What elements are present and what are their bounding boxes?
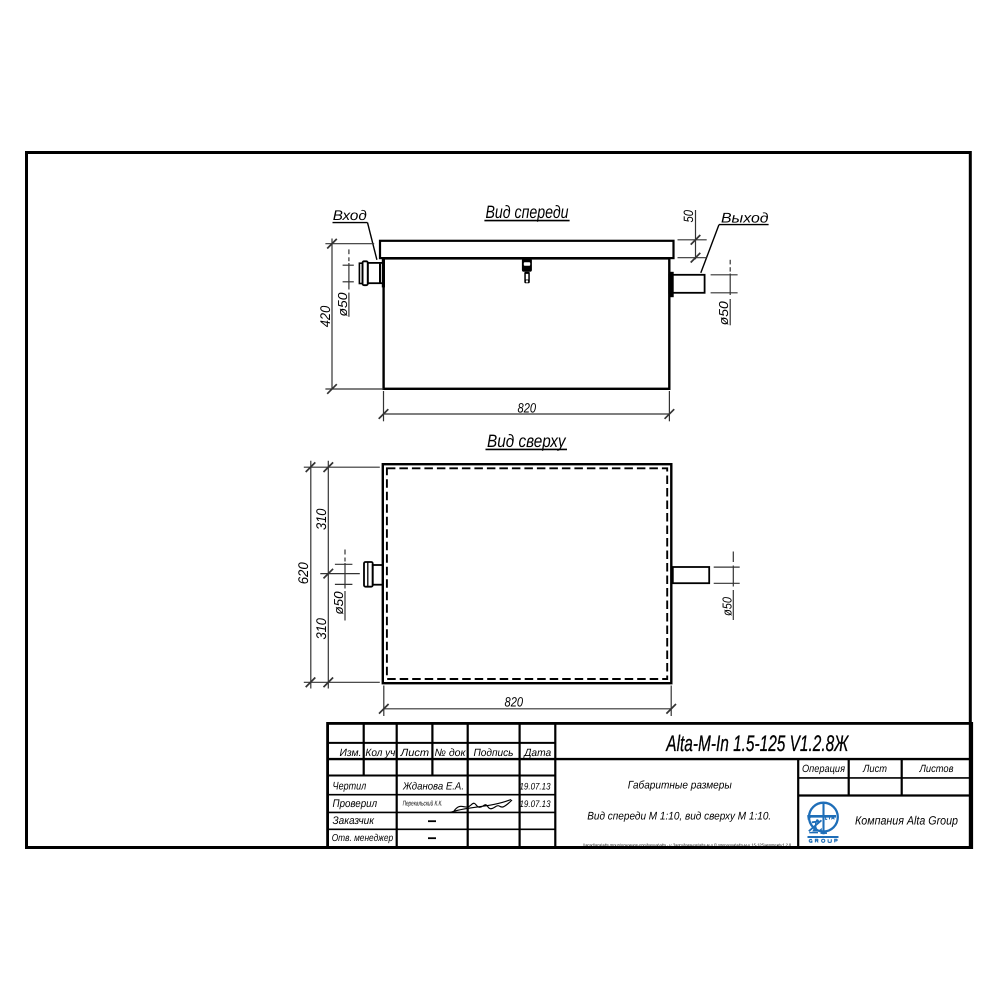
svg-text:Заказчик: Заказчик xyxy=(333,815,375,827)
svg-text:Дата: Дата xyxy=(523,747,551,759)
svg-text:420: 420 xyxy=(317,306,333,328)
svg-text:Вход: Вход xyxy=(333,207,367,223)
svg-text:Кол уч: Кол уч xyxy=(365,747,396,759)
svg-text:Чертил: Чертил xyxy=(333,781,367,793)
svg-text:820: 820 xyxy=(518,400,537,415)
svg-text:Выход: Выход xyxy=(721,209,769,225)
svg-text:Проверил: Проверил xyxy=(333,798,378,810)
svg-text:820: 820 xyxy=(505,695,524,710)
svg-text:Alta-M-In 1.5-125 V1.2.8Ж: Alta-M-In 1.5-125 V1.2.8Ж xyxy=(665,731,849,756)
svg-text:Лист: Лист xyxy=(400,747,430,759)
svg-text:№ док: № док xyxy=(435,747,467,759)
svg-text:\\acad\aca\alta group\основное: \\acad\aca\alta group\основное-продукция… xyxy=(583,842,792,847)
svg-text:50: 50 xyxy=(681,210,696,223)
svg-text:Операция: Операция xyxy=(802,763,845,775)
svg-text:19.07.13: 19.07.13 xyxy=(520,799,552,810)
svg-text:Габаритные размеры: Габаритные размеры xyxy=(628,780,732,792)
svg-text:Жданова Е.А.: Жданова Е.А. xyxy=(402,781,464,793)
svg-text:ø50: ø50 xyxy=(331,591,346,615)
svg-text:19.07.13: 19.07.13 xyxy=(520,782,552,793)
svg-text:ø50: ø50 xyxy=(719,596,734,616)
svg-text:Вид сверху: Вид сверху xyxy=(487,431,566,451)
svg-text:Отв. менеджер: Отв. менеджер xyxy=(332,833,394,844)
svg-text:310: 310 xyxy=(313,508,329,530)
svg-text:Подпись: Подпись xyxy=(474,747,514,759)
svg-text:310: 310 xyxy=(313,618,329,640)
svg-text:620: 620 xyxy=(295,562,311,584)
svg-text:Изм.: Изм. xyxy=(340,747,362,759)
svg-text:Лист: Лист xyxy=(862,763,887,775)
svg-text:Вид спереди М 1:10, вид сверху: Вид спереди М 1:10, вид сверху М 1:10. xyxy=(587,811,771,823)
svg-text:Перекальский К.К.: Перекальский К.К. xyxy=(403,800,443,808)
svg-text:ø50: ø50 xyxy=(716,300,731,325)
svg-text:Компания Alta Group: Компания Alta Group xyxy=(855,814,958,828)
svg-text:Вид спереди: Вид спереди xyxy=(486,202,569,222)
svg-text:ø50: ø50 xyxy=(335,292,350,317)
svg-text:Листов: Листов xyxy=(919,763,954,775)
